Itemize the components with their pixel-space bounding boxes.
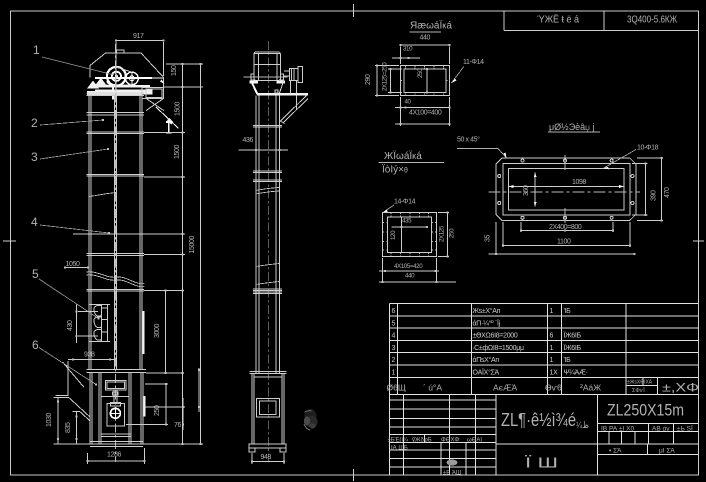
svg-text:2: 2	[31, 116, 38, 130]
svg-text:ІΒ РА ±Ι Х0: ІΒ РА ±Ι Х0	[601, 426, 635, 433]
svg-text:1: 1	[550, 308, 554, 315]
svg-text:2: 2	[392, 357, 396, 364]
svg-text:6: 6	[392, 308, 396, 315]
svg-text:3: 3	[31, 150, 38, 164]
svg-text:ЇЖ6ΙБ: ЇЖ6ΙБ	[564, 344, 582, 352]
svg-text:14-Φ14: 14-Φ14	[394, 199, 416, 206]
svg-text:±ЖѕХϴΙХА: ±ЖѕХϴΙХА	[627, 380, 653, 386]
svg-text:15000: 15000	[189, 236, 196, 254]
svg-text:436: 436	[243, 137, 254, 144]
svg-text:·С±фΩΙ8=1500μμ: ·С±фΩΙ8=1500μμ	[473, 345, 524, 352]
svg-text:ʹІБ: ʹІБ	[564, 356, 572, 364]
svg-text:435: 435	[402, 218, 412, 225]
svg-text:3000: 3000	[154, 324, 161, 338]
svg-text:Ø6Щ: Ø6Щ	[387, 383, 406, 393]
svg-text:ωϴΑΙ: ωϴΑΙ	[467, 437, 482, 443]
svg-text:1030: 1030	[46, 413, 53, 427]
svg-text:1050: 1050	[66, 261, 80, 268]
svg-text:150: 150	[171, 65, 178, 76]
svg-text:1: 1	[392, 369, 396, 376]
svg-text:ΎЖЁ ŧ ё á: ΎЖЁ ŧ ё á	[537, 14, 579, 26]
svg-text:250: 250	[449, 228, 456, 238]
svg-text:±,ХΦ: ±,ХΦ	[662, 381, 699, 395]
svg-text:440: 440	[405, 273, 415, 280]
svg-text:5: 5	[392, 320, 396, 327]
svg-text:ZL¶·ê½ì¾é¼ظ: ZL¶·ê½ì¾é¼ظ	[501, 410, 589, 430]
svg-text:Жѕ±Х°Ап: Жѕ±Х°Ап	[473, 307, 501, 315]
svg-text:5: 5	[32, 267, 39, 281]
svg-text:938: 938	[84, 352, 95, 359]
svg-text:2X125=250: 2X125=250	[382, 62, 389, 91]
svg-text:1500: 1500	[175, 102, 182, 116]
svg-text:±БΈ(Ι¼: ±БΈ(Ι¼	[388, 437, 410, 443]
svg-text:1: 1	[550, 345, 554, 352]
svg-text:4: 4	[31, 215, 38, 229]
svg-text:4X100=400: 4X100=400	[409, 110, 442, 117]
svg-text:1: 1	[33, 43, 40, 57]
svg-text:´ ú°А: ´ ú°А	[423, 383, 442, 393]
svg-text:310: 310	[403, 46, 413, 53]
svg-text:ΣΦѵЇ: ΣΦѵЇ	[632, 387, 645, 394]
svg-text:917: 917	[133, 33, 144, 40]
svg-text:390: 390	[651, 190, 658, 201]
svg-text:470: 470	[664, 187, 671, 198]
svg-text:ʹІБ: ʹІБ	[564, 307, 572, 315]
svg-text:ЇЖ6ΙБ: ЇЖ6ΙБ	[564, 332, 582, 340]
svg-text:±Б ΆЩ: ±Б ΆЩ	[443, 470, 462, 476]
svg-text:±Ь ЅЇ: ±Ь ЅЇ	[677, 425, 693, 433]
svg-text:50 x 45°: 50 x 45°	[457, 136, 480, 144]
svg-text:290: 290	[365, 74, 372, 85]
svg-text:76: 76	[174, 422, 181, 429]
svg-text:360: 360	[523, 185, 530, 196]
svg-text:10-Φ18: 10-Φ18	[637, 145, 659, 152]
svg-text:4: 4	[392, 333, 396, 340]
svg-text:Ї Ш: Ї Ш	[525, 455, 558, 472]
svg-text:ΦϴХΦ: ΦϴХΦ	[441, 437, 459, 443]
svg-text:άП·¼°º ´Їј: άП·¼°º ´Їј	[473, 319, 501, 327]
svg-text:ЖЇωáЇҜá: ЖЇωáЇҜá	[384, 150, 422, 162]
svg-text:1286: 1286	[107, 452, 121, 459]
svg-text:Ψ¼ΆÆ·: Ψ¼ΆÆ·	[564, 369, 588, 376]
svg-text:6: 6	[32, 338, 39, 352]
svg-text:35: 35	[485, 235, 492, 242]
svg-text:835: 835	[65, 422, 72, 433]
svg-text:948: 948	[261, 454, 272, 461]
svg-text:1500: 1500	[174, 145, 181, 159]
svg-text:ΟАЇХ°ΣΆ: ΟАЇХ°ΣΆ	[473, 368, 500, 376]
svg-text:430: 430	[67, 320, 74, 331]
svg-text:АєÆΆ: АєÆΆ	[493, 383, 518, 393]
svg-text:6: 6	[550, 333, 554, 340]
svg-text:2X125: 2X125	[439, 225, 446, 242]
svg-text:120: 120	[390, 230, 397, 240]
svg-text:άПѕХ°Ап: άПѕХ°Ап	[473, 356, 500, 364]
svg-text:11-Φ14: 11-Φ14	[463, 59, 484, 66]
svg-text:АΒ αγ: АΒ αγ	[652, 426, 670, 433]
svg-text:1: 1	[550, 357, 554, 364]
svg-text:1100: 1100	[557, 239, 571, 246]
svg-text:ЯæωáЇҜá: ЯæωáЇҜá	[410, 20, 452, 32]
svg-text:4X105=420: 4X105=420	[394, 263, 423, 270]
svg-text:μΙ ΣΆ: μΙ ΣΆ	[659, 447, 675, 454]
svg-text:1098: 1098	[572, 179, 586, 186]
svg-text:ўЖδφБ: ўЖδφБ	[412, 436, 432, 443]
svg-text:3: 3	[392, 345, 396, 352]
svg-text:1Х: 1Х	[550, 369, 559, 376]
svg-text:40: 40	[405, 99, 412, 106]
svg-text:▪ ΣΆ: ▪ ΣΆ	[609, 447, 622, 454]
svg-text:±ϴХΩ6Ι8=2000: ±ϴХΩ6Ι8=2000	[473, 333, 518, 340]
svg-text:ІА ШБ: ІА ШБ	[391, 446, 408, 452]
svg-text:440: 440	[420, 35, 431, 42]
svg-text:ZL250X15m: ZL250X15m	[607, 401, 684, 420]
svg-text:3Q400-5.6КЖ: 3Q400-5.6КЖ	[627, 14, 677, 26]
svg-text:ϴѵ6: ϴѵ6	[545, 383, 562, 393]
svg-text:250: 250	[417, 68, 424, 78]
svg-text:²АáЖ: ²АáЖ	[580, 383, 601, 393]
